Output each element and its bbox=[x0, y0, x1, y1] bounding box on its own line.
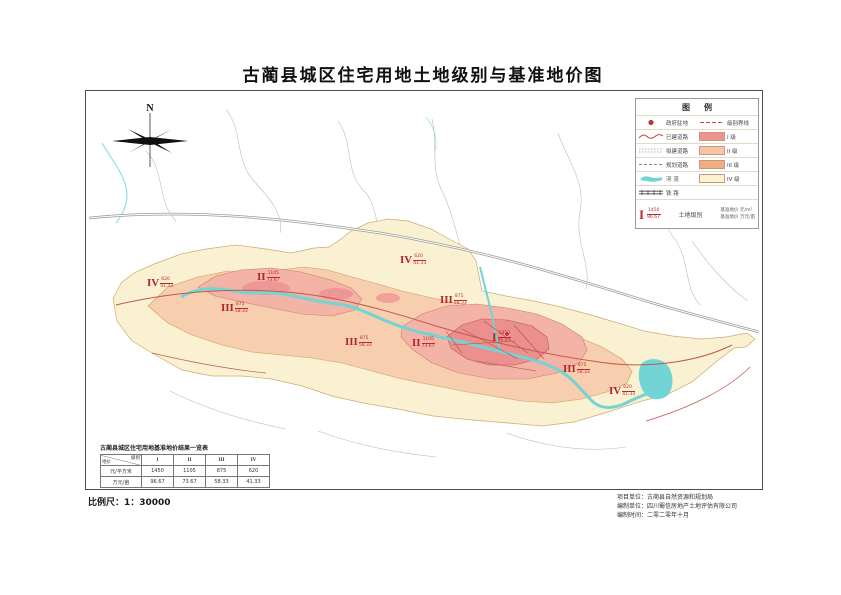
legend-label: 拟建道路 bbox=[666, 147, 688, 155]
legend-swatch bbox=[699, 146, 725, 155]
railway-symbol-icon bbox=[638, 188, 664, 197]
legend-entry-right: I 级 bbox=[697, 132, 758, 141]
legend-title: 图例 bbox=[636, 99, 758, 115]
legend-box: 图例 政府驻地级别界线已建道路I 级拟建道路II 级规划道路III 级河 流IV… bbox=[635, 98, 759, 229]
legend-row: 规划道路III 级 bbox=[636, 157, 758, 171]
table-row-header: 万元/亩 bbox=[101, 477, 142, 488]
legend-key-unit-2: 基准地价 万元/亩 bbox=[721, 214, 755, 221]
zone-grade-1-patch bbox=[319, 288, 353, 300]
table-cell: 620 bbox=[238, 466, 270, 477]
swatch-grade2-swatch bbox=[699, 146, 725, 155]
plan-road-line-icon bbox=[638, 160, 664, 169]
credit-compiler-unit: 编制单位：四川蜀信房地产土地评估有限公司 bbox=[617, 502, 737, 511]
legend-entry-left: 规划道路 bbox=[636, 160, 697, 169]
table-cell: 73.67 bbox=[174, 477, 206, 488]
table-col-header: III bbox=[206, 455, 238, 466]
legend-label: 铁 路 bbox=[666, 189, 679, 197]
legend-entry-left: 政府驻地 bbox=[636, 118, 697, 127]
legend-entry-right: 级别界线 bbox=[697, 118, 758, 127]
government-seat-dot bbox=[505, 332, 510, 337]
table-row: 万元/亩96.6773.6758.3341.33 bbox=[101, 477, 270, 488]
legend-swatch bbox=[699, 174, 725, 183]
legend-row: 已建道路I 级 bbox=[636, 129, 758, 143]
swatch-grade4-swatch bbox=[699, 174, 725, 183]
legend-entry-left: 已建道路 bbox=[636, 132, 697, 141]
legend-key-price-sqm: 1450 bbox=[647, 208, 660, 215]
legend-label: 河 流 bbox=[666, 175, 679, 183]
compass-rose: N bbox=[108, 97, 192, 175]
legend-rows: 政府驻地级别界线已建道路I 级拟建道路II 级规划道路III 级河 流IV 级铁… bbox=[636, 115, 758, 199]
table-col-header: I bbox=[142, 455, 174, 466]
credit-project-unit: 项目单位：古蔺县自然资源和规划局 bbox=[617, 493, 737, 502]
legend-row: 政府驻地级别界线 bbox=[636, 115, 758, 129]
legend-label: 已建道路 bbox=[666, 133, 688, 141]
table-col-header: II bbox=[174, 455, 206, 466]
legend-key-grade: I bbox=[639, 208, 644, 221]
legend-key-unit-1: 基准地价 元/m² bbox=[721, 207, 755, 214]
legend-label: 规划道路 bbox=[666, 161, 688, 169]
legend-entry-right: IV 级 bbox=[697, 174, 758, 183]
legend-key-price-mu: 96.67 bbox=[647, 215, 660, 221]
legend-swatch bbox=[699, 132, 725, 141]
table-row: 元/平方米14501105875620 bbox=[101, 466, 270, 477]
table-cell: 41.33 bbox=[238, 477, 270, 488]
legend-label: III 级 bbox=[727, 161, 739, 169]
legend-entry-left: 铁 路 bbox=[636, 188, 697, 197]
credits-block: 项目单位：古蔺县自然资源和规划局 编制单位：四川蜀信房地产土地评估有限公司 编制… bbox=[617, 493, 737, 520]
price-table-block: 古蔺县城区住宅用地基准地价结果一览表 级别地价IIIIIIIV元/平方米1450… bbox=[100, 443, 270, 488]
built-road-line-icon bbox=[638, 132, 664, 141]
planned-road-line-icon bbox=[638, 146, 664, 155]
legend-label: IV 级 bbox=[727, 175, 740, 183]
legend-entry-right: II 级 bbox=[697, 146, 758, 155]
government-seat-dot-icon bbox=[638, 118, 664, 127]
legend-entry-left: 拟建道路 bbox=[636, 146, 697, 155]
legend-label: 政府驻地 bbox=[666, 119, 688, 127]
price-table-title: 古蔺县城区住宅用地基准地价结果一览表 bbox=[100, 443, 270, 452]
table-cell: 1105 bbox=[174, 466, 206, 477]
table-row-header: 元/平方米 bbox=[101, 466, 142, 477]
legend-entry-left: 河 流 bbox=[636, 174, 697, 183]
table-col-header: IV bbox=[238, 455, 270, 466]
river-symbol-icon bbox=[638, 174, 664, 183]
legend-row: 拟建道路II 级 bbox=[636, 143, 758, 157]
price-table: 级别地价IIIIIIIV元/平方米14501105875620万元/亩96.67… bbox=[100, 454, 270, 488]
legend-key-units: 基准地价 元/m² 基准地价 万元/亩 bbox=[721, 207, 755, 221]
legend-label: II 级 bbox=[727, 147, 738, 155]
swatch-grade3-swatch bbox=[699, 160, 725, 169]
legend-label: 级别界线 bbox=[727, 119, 749, 127]
legend-key-values: 1450 96.67 bbox=[647, 208, 660, 221]
swatch-grade1-swatch bbox=[699, 132, 725, 141]
zone-grade-1-patch bbox=[376, 293, 400, 303]
legend-row: 河 流IV 级 bbox=[636, 171, 758, 185]
legend-entry-right: III 级 bbox=[697, 160, 758, 169]
compass-north-label: N bbox=[146, 103, 154, 114]
table-corner-cell: 级别地价 bbox=[101, 455, 142, 466]
legend-price-key: I 1450 96.67 土地级别 基准地价 元/m² 基准地价 万元/亩 bbox=[636, 199, 758, 228]
legend-swatch bbox=[699, 160, 725, 169]
corner-bottom-label: 地价 bbox=[102, 459, 111, 465]
legend-row: 铁 路 bbox=[636, 185, 758, 199]
legend-key-center-label: 土地级别 bbox=[664, 210, 718, 219]
map-scale: 比例尺：1：30000 bbox=[88, 495, 171, 508]
map-frame: N 图例 政府驻地级别界线已建道路I 级拟建道路II 级规划道路III 级河 流… bbox=[85, 90, 763, 490]
credit-date: 编制时间：二零二零年十月 bbox=[617, 511, 737, 520]
legend-label: I 级 bbox=[727, 133, 736, 141]
table-cell: 96.67 bbox=[142, 477, 174, 488]
grade-boundary-dash-icon bbox=[699, 118, 725, 127]
corner-top-label: 级别 bbox=[131, 455, 140, 461]
page-title: 古蔺县城区住宅用地土地级别与基准地价图 bbox=[85, 61, 761, 86]
table-cell: 58.33 bbox=[206, 477, 238, 488]
table-cell: 1450 bbox=[142, 466, 174, 477]
table-cell: 875 bbox=[206, 466, 238, 477]
